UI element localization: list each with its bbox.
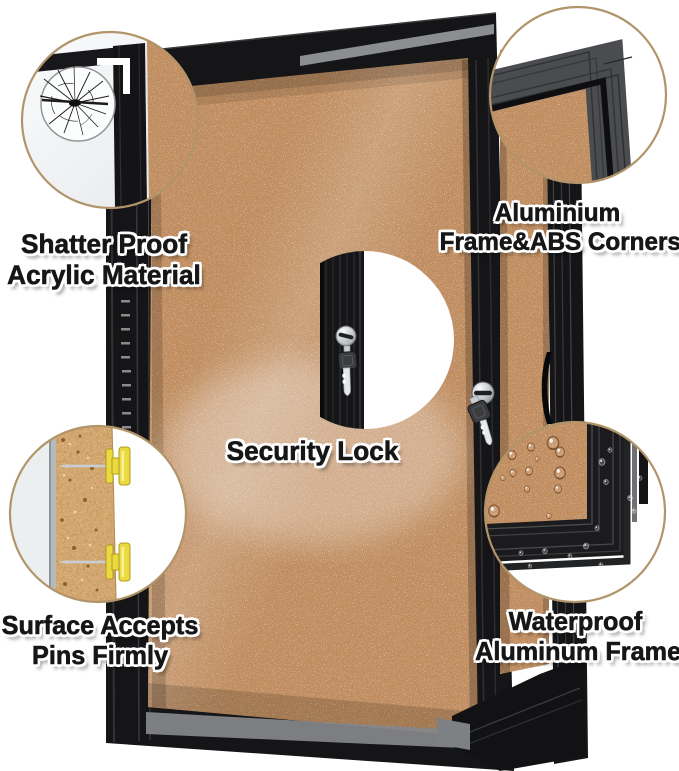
- shatter-proof-line1: Shatter Proof: [0, 229, 211, 260]
- waterproof-label: Waterproof Aluminum Frame: [475, 606, 676, 666]
- aluminium-frame-label: Aluminium Frame&ABS Corners: [440, 199, 676, 257]
- shatter-detail-circle: [22, 32, 200, 208]
- shatter-proof-label: Shatter Proof Acrylic Material: [0, 229, 211, 292]
- aluminium-frame-line1: Aluminium: [440, 199, 676, 228]
- product-infographic: Shatter Proof Acrylic Material Aluminium…: [0, 0, 679, 771]
- waterproof-line2: Aluminum Frame: [475, 636, 676, 666]
- pins-detail-circle: [10, 426, 186, 602]
- pins-line2: Pins Firmly: [0, 640, 203, 670]
- aluminium-frame-line2: Frame&ABS Corners: [440, 228, 676, 257]
- waterproof-line1: Waterproof: [475, 606, 676, 636]
- pins-label: Surface Accepts Pins Firmly: [0, 610, 203, 670]
- waterproof-detail-circle: [485, 420, 665, 602]
- security-lock-icon: [336, 326, 356, 346]
- shatter-proof-line2: Acrylic Material: [0, 260, 211, 291]
- pins-line1: Surface Accepts: [0, 610, 203, 640]
- security-lock-label: Security Lock: [227, 436, 398, 467]
